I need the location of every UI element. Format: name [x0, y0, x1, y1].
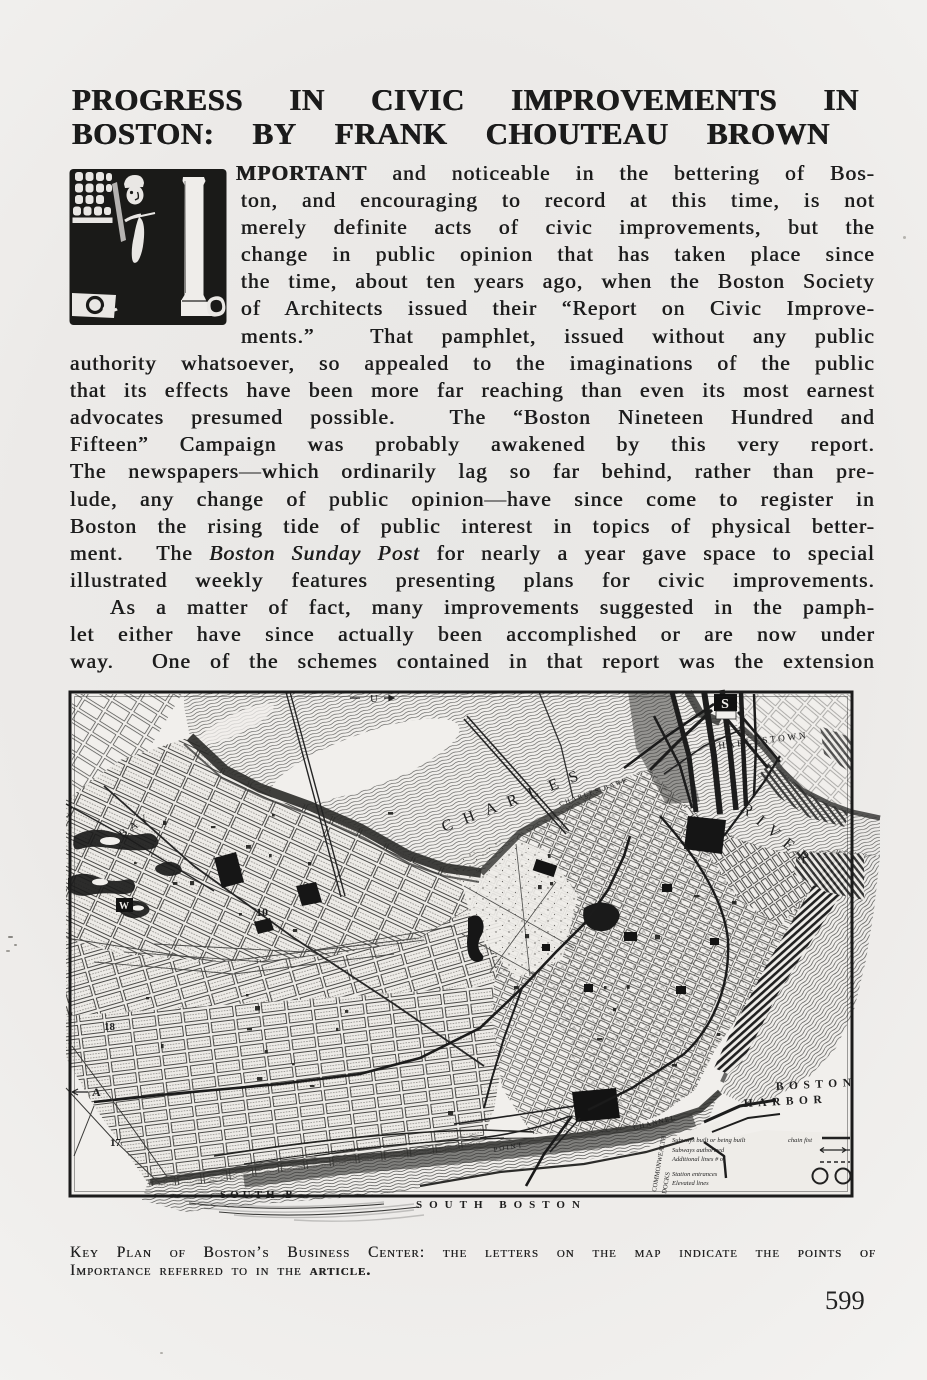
svg-text:chain fist: chain fist: [788, 1137, 812, 1144]
svg-text:18: 18: [104, 1021, 116, 1033]
svg-text:Elevated lines: Elevated lines: [671, 1180, 709, 1187]
svg-text:Subways built or being built: Subways built or being built: [672, 1137, 746, 1144]
svg-text:Additional lines # of: Additional lines # of: [671, 1156, 726, 1163]
svg-text:17: 17: [110, 1137, 122, 1149]
svg-text:S: S: [721, 697, 729, 712]
svg-text:10: 10: [256, 905, 268, 919]
svg-text:Subways authorized: Subways authorized: [672, 1147, 725, 1154]
svg-text:W: W: [119, 901, 129, 912]
svg-text:U: U: [370, 693, 378, 705]
svg-text:Station entrances: Station entrances: [672, 1171, 718, 1178]
svg-text:SOUTH BOSTON: SOUTH BOSTON: [416, 1199, 587, 1211]
svg-text:A: A: [92, 1085, 101, 1099]
